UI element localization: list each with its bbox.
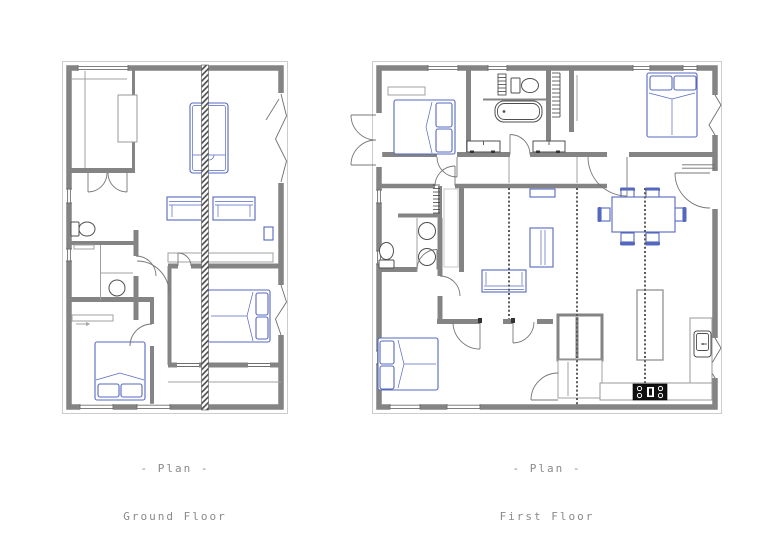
toilet: [71, 222, 95, 236]
structural-hatched-column: [202, 65, 209, 410]
floor-plan-sheet: - Plan - Ground Floor - Plan - First Flo…: [0, 0, 760, 538]
ground-floor-caption: - Plan - Ground Floor: [62, 429, 288, 538]
stove: [633, 384, 667, 400]
first-floor-caption-line1: - Plan -: [372, 461, 722, 477]
kitchen-island: [637, 290, 663, 360]
ground-floor-caption-line1: - Plan -: [62, 461, 288, 477]
sofa: [482, 270, 526, 292]
ground-floor-caption-line2: Ground Floor: [62, 509, 288, 525]
double-bed: [394, 100, 455, 154]
bathroom-sink: [109, 280, 125, 296]
first-floor-caption-line2: First Floor: [372, 509, 722, 525]
basin: [419, 223, 436, 240]
entry-closet: [558, 360, 602, 398]
closet-band: [72, 315, 113, 321]
double-bed: [378, 338, 438, 390]
radiator: [533, 141, 565, 153]
wall-shelf: [530, 189, 555, 197]
radiator: [467, 141, 500, 153]
towel-radiator: [498, 74, 506, 95]
casement-window: [278, 93, 284, 183]
double-bed: [95, 342, 145, 400]
dining-table: [612, 197, 675, 232]
duct-shaft: [444, 189, 458, 267]
double-bed: [208, 290, 270, 342]
bed: [190, 103, 228, 173]
sideboard: [530, 228, 553, 267]
sofa: [167, 197, 207, 220]
kitchen-sink: [694, 331, 711, 357]
double-bed: [647, 73, 697, 137]
first-floor-caption: - Plan - First Floor: [372, 429, 722, 538]
first-floor-plan-drawing: [344, 61, 726, 414]
ground-floor-plan-drawing: [62, 61, 288, 414]
closet-shelf: [388, 87, 425, 95]
toilet: [511, 78, 539, 93]
balcony-door-opening: [712, 171, 718, 209]
french-entry-doors: [351, 113, 382, 167]
side-table: [264, 227, 273, 240]
sofa: [213, 197, 255, 220]
toilet: [379, 243, 394, 269]
desk: [118, 95, 137, 142]
bathtub: [495, 101, 542, 122]
